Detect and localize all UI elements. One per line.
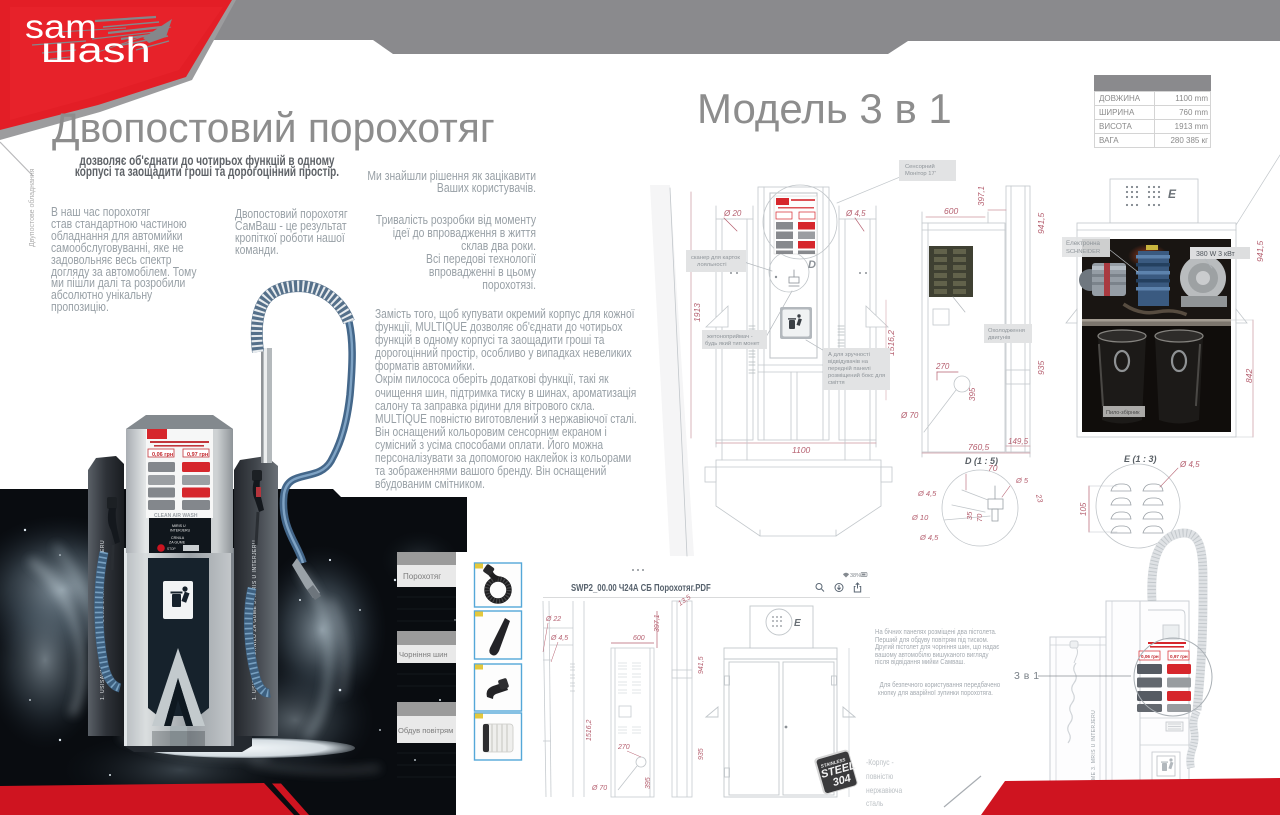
svg-text:Пило-збірник: Пило-збірник xyxy=(1106,410,1140,416)
svg-text:CRNILA: CRNILA xyxy=(171,536,185,540)
svg-text:Ø 4,5: Ø 4,5 xyxy=(550,635,568,642)
svg-text:Порохотяг: Порохотяг xyxy=(403,572,441,581)
svg-text:ME 3. MRIS U INTERJERU: ME 3. MRIS U INTERJERU xyxy=(1091,710,1097,780)
svg-text:600: 600 xyxy=(944,206,958,216)
svg-text:70: 70 xyxy=(975,513,984,522)
svg-text:D (1 : 5): D (1 : 5) xyxy=(965,456,998,466)
svg-text:0,06 грн: 0,06 грн xyxy=(1141,654,1159,659)
svg-text:Ø 20: Ø 20 xyxy=(723,209,742,218)
svg-text:Ø 5: Ø 5 xyxy=(1015,476,1029,485)
svg-text:0,97 грн: 0,97 грн xyxy=(1170,654,1188,659)
svg-text:149,5: 149,5 xyxy=(1008,437,1029,446)
svg-text:397,1: 397,1 xyxy=(977,186,986,206)
svg-text:D: D xyxy=(808,259,816,271)
svg-text:935: 935 xyxy=(1036,361,1046,375)
svg-text:941,5: 941,5 xyxy=(1036,212,1046,234)
svg-text:600: 600 xyxy=(633,635,645,642)
svg-text:270: 270 xyxy=(617,744,630,751)
svg-text:будь який тип монет: будь який тип монет xyxy=(705,340,760,347)
svg-text:E: E xyxy=(794,618,801,629)
svg-text:Монітор 17': Монітор 17' xyxy=(905,171,936,177)
svg-text:941,5: 941,5 xyxy=(1255,240,1265,262)
svg-text:23: 23 xyxy=(1034,492,1045,504)
svg-text:двигунів: двигунів xyxy=(988,335,1010,341)
svg-text:842: 842 xyxy=(1244,369,1254,383)
svg-text:А для зручності: А для зручності xyxy=(828,352,870,358)
svg-text:935: 935 xyxy=(698,748,705,760)
svg-text:380 W 3 кВт: 380 W 3 кВт xyxy=(1196,251,1236,258)
svg-text:розміщений бокс для: розміщений бокс для xyxy=(828,372,885,379)
svg-text:Ø 4,5: Ø 4,5 xyxy=(845,209,866,218)
svg-text:передній панелі: передній панелі xyxy=(828,365,871,372)
svg-text:0,97 грн: 0,97 грн xyxy=(187,452,208,458)
svg-text:0,06 грн: 0,06 грн xyxy=(152,452,173,458)
svg-text:Ø 4,5: Ø 4,5 xyxy=(1179,460,1200,469)
svg-text:397,1: 397,1 xyxy=(654,614,661,632)
svg-text:SCHNEIDER: SCHNEIDER xyxy=(1066,249,1100,255)
svg-text:Ø 10: Ø 10 xyxy=(911,513,929,522)
svg-text:E: E xyxy=(1168,187,1177,201)
svg-text:Обдув повітрям: Обдув повітрям xyxy=(398,726,453,735)
svg-text:STOP: STOP xyxy=(167,547,176,551)
svg-text:Ø 4,5: Ø 4,5 xyxy=(919,533,939,542)
svg-text:відвідувачів на: відвідувачів на xyxy=(828,359,869,365)
svg-text:1516,2: 1516,2 xyxy=(586,719,593,741)
svg-text:395: 395 xyxy=(645,777,652,789)
svg-text:760,5: 760,5 xyxy=(968,442,990,452)
svg-text:35: 35 xyxy=(965,511,974,520)
svg-text:E (1 : 3): E (1 : 3) xyxy=(1124,454,1157,464)
svg-text:Ø 4,5: Ø 4,5 xyxy=(917,489,937,498)
svg-text:Сенсорний: Сенсорний xyxy=(905,163,935,170)
svg-text:Чорніння шин: Чорніння шин xyxy=(399,650,448,659)
svg-text:Ø 70: Ø 70 xyxy=(900,411,919,420)
svg-text:MIRIS U: MIRIS U xyxy=(172,524,186,528)
svg-text:сміття: сміття xyxy=(828,380,845,386)
svg-text:941,5: 941,5 xyxy=(698,656,705,674)
svg-text:395: 395 xyxy=(968,387,977,401)
svg-text:Охолодження: Охолодження xyxy=(988,328,1025,334)
svg-text:сканер для карток: сканер для карток xyxy=(691,255,740,261)
svg-text:Ø 70: Ø 70 xyxy=(591,785,607,792)
svg-text:SWP2_00.00 Ч24А СБ Порохотяг.P: SWP2_00.00 Ч24А СБ Порохотяг.PDF xyxy=(571,582,711,593)
svg-text:ZA GUME: ZA GUME xyxy=(169,541,186,545)
svg-text:1100: 1100 xyxy=(792,445,811,455)
svg-text:38%: 38% xyxy=(850,573,861,579)
svg-text:270: 270 xyxy=(935,362,950,371)
svg-text:105: 105 xyxy=(1079,502,1088,516)
svg-text:лояльності: лояльності xyxy=(697,262,726,268)
svg-text:жетоноприймач -: жетоноприймач - xyxy=(707,333,753,340)
svg-text:INTERJERU: INTERJERU xyxy=(170,529,191,533)
svg-text:1913: 1913 xyxy=(692,303,702,322)
svg-text:Ø 22: Ø 22 xyxy=(545,616,561,623)
svg-text:Електронна: Електронна xyxy=(1066,240,1101,247)
